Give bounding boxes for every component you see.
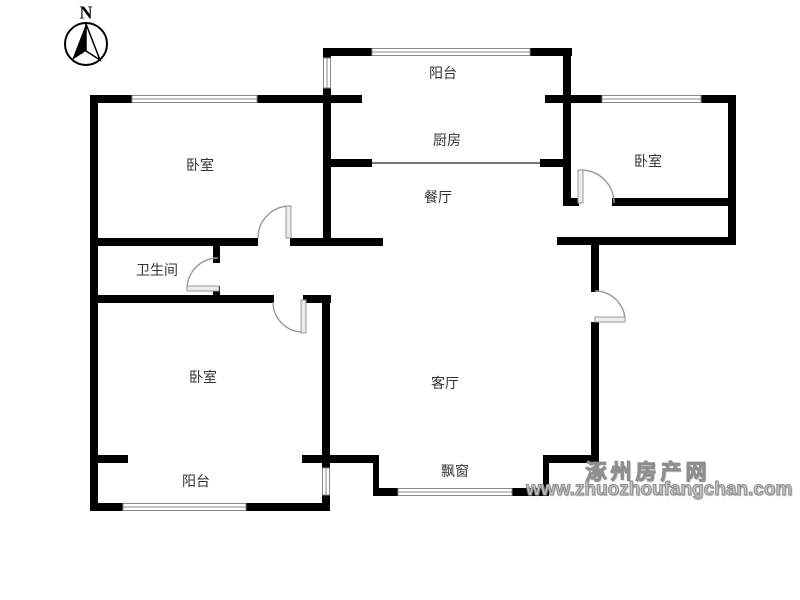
doors (187, 170, 625, 333)
wall-segment (246, 503, 330, 511)
wall-segment (95, 238, 258, 246)
window (323, 468, 330, 495)
wall-segment (322, 495, 330, 511)
window (372, 49, 530, 56)
room-label-bedroom-top-left: 卧室 (186, 155, 214, 175)
window (324, 58, 331, 88)
window (602, 96, 701, 103)
floorplan-canvas: N 阳台 厨房 卧室 卧室 餐厅 卫生间 卧室 客厅 飘窗 阳台 涿州房产网 w… (0, 0, 800, 600)
wall-segment (322, 295, 330, 468)
window (398, 489, 512, 496)
wall-segment (563, 48, 571, 206)
wall-segment (540, 159, 564, 167)
wall-segment (95, 295, 274, 303)
wall-segment (90, 95, 98, 511)
wall-segment (213, 246, 220, 263)
wall-segment (373, 463, 379, 490)
wall-segment (557, 237, 736, 245)
floorplan-drawing (0, 0, 800, 600)
watermark-url: www.zhuozhoufangchan.com (526, 479, 772, 501)
room-label-balcony-top: 阳台 (429, 63, 457, 83)
door (578, 170, 614, 203)
wall-segment (728, 95, 736, 245)
wall-segment (323, 48, 331, 58)
wall-segment (612, 198, 732, 206)
room-label-bedroom-top-right: 卧室 (634, 151, 662, 171)
wall-segment (257, 95, 362, 103)
wall-segment (302, 455, 379, 463)
compass-north-label: N (80, 3, 93, 24)
wall-segment (95, 455, 128, 463)
window (132, 96, 257, 103)
window (123, 504, 246, 511)
door (258, 206, 291, 238)
wall-segment (545, 95, 602, 103)
room-label-bay-window: 飘窗 (441, 461, 469, 481)
wall-segment (323, 88, 331, 246)
room-label-living: 客厅 (431, 373, 459, 393)
door (273, 300, 306, 333)
room-label-kitchen: 厨房 (433, 130, 461, 150)
room-label-bathroom: 卫生间 (136, 260, 178, 280)
compass-icon (65, 23, 107, 65)
room-label-bedroom-bottom-left: 卧室 (189, 367, 217, 387)
wall-segment (591, 245, 599, 292)
door (595, 291, 625, 322)
walls (90, 48, 736, 511)
wall-segment (591, 322, 599, 463)
windows (123, 49, 701, 511)
room-label-dining: 餐厅 (424, 187, 452, 207)
kitchen-dining-divider (372, 162, 540, 164)
wall-segment (290, 238, 383, 246)
room-label-balcony-bottom: 阳台 (182, 471, 210, 491)
wall-segment (331, 159, 372, 167)
